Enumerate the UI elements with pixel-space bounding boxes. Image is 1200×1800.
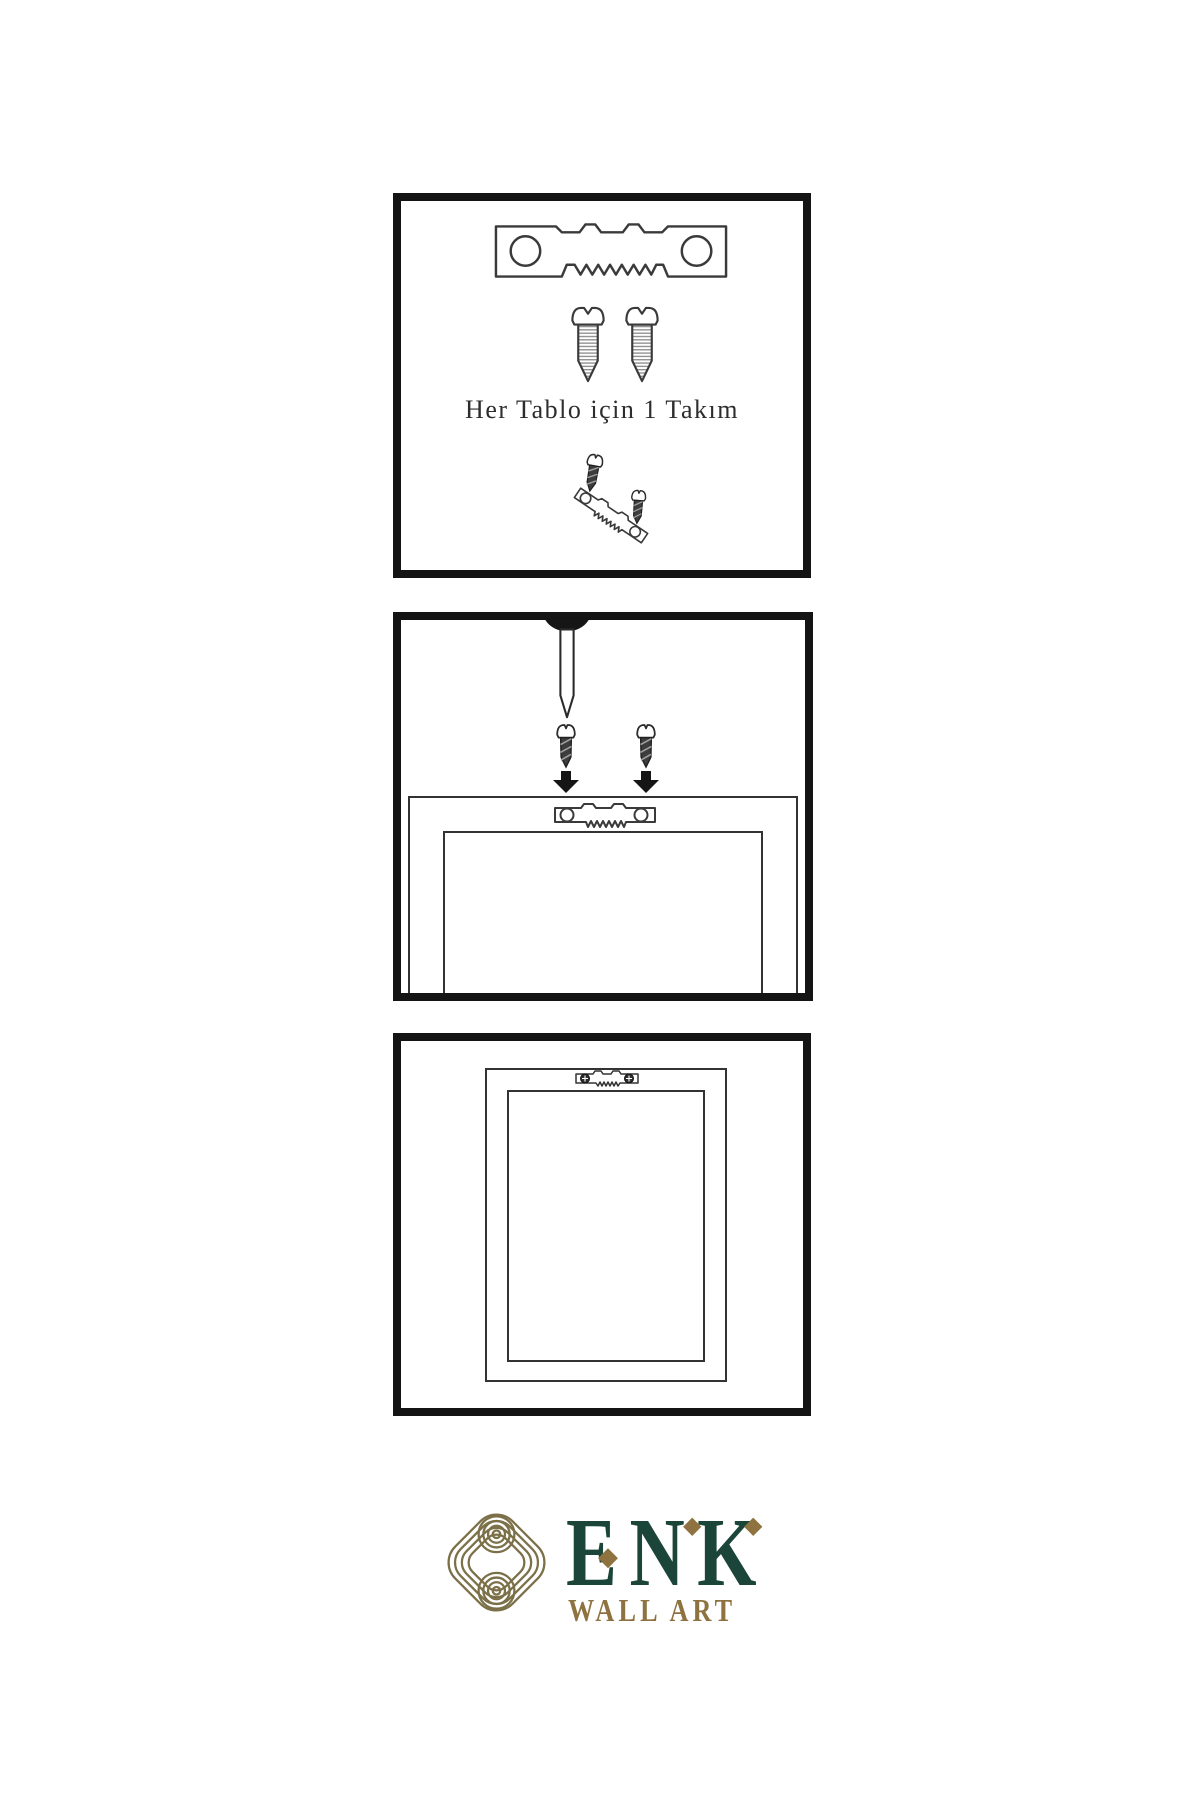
screw-icon xyxy=(623,305,661,385)
screw-icon xyxy=(569,305,607,385)
brand-name: ENK xyxy=(566,1503,769,1603)
dark-screw-icon xyxy=(628,488,648,525)
instruction-sheet: Her Tablo için 1 Takım ENK ◆ ◆ ◆ WALL AR… xyxy=(0,0,1200,1800)
step-panel-2 xyxy=(393,612,813,1001)
down-arrow-icon xyxy=(553,771,579,793)
step-panel-3 xyxy=(393,1033,811,1416)
brand-knot-icon xyxy=(440,1498,553,1627)
brand-tagline: WALL ART xyxy=(568,1593,736,1627)
frame-back-inner-outline xyxy=(507,1090,705,1362)
diamond-icon: ◆ xyxy=(683,1514,701,1538)
step-panel-1: Her Tablo için 1 Takım xyxy=(393,193,811,578)
mounted-hanger-icon xyxy=(575,1070,639,1087)
step-caption: Her Tablo için 1 Takım xyxy=(401,395,803,425)
down-arrow-icon xyxy=(633,771,659,793)
sawtooth-hanger-icon xyxy=(553,801,657,829)
wall-nail-icon xyxy=(543,620,591,720)
diamond-icon: ◆ xyxy=(744,1514,762,1538)
dark-screw-icon xyxy=(555,723,577,769)
diamond-icon: ◆ xyxy=(598,1544,618,1570)
frame-back-inner-outline xyxy=(443,831,763,993)
sawtooth-hanger-icon xyxy=(493,221,729,281)
dark-screw-icon xyxy=(635,723,657,769)
